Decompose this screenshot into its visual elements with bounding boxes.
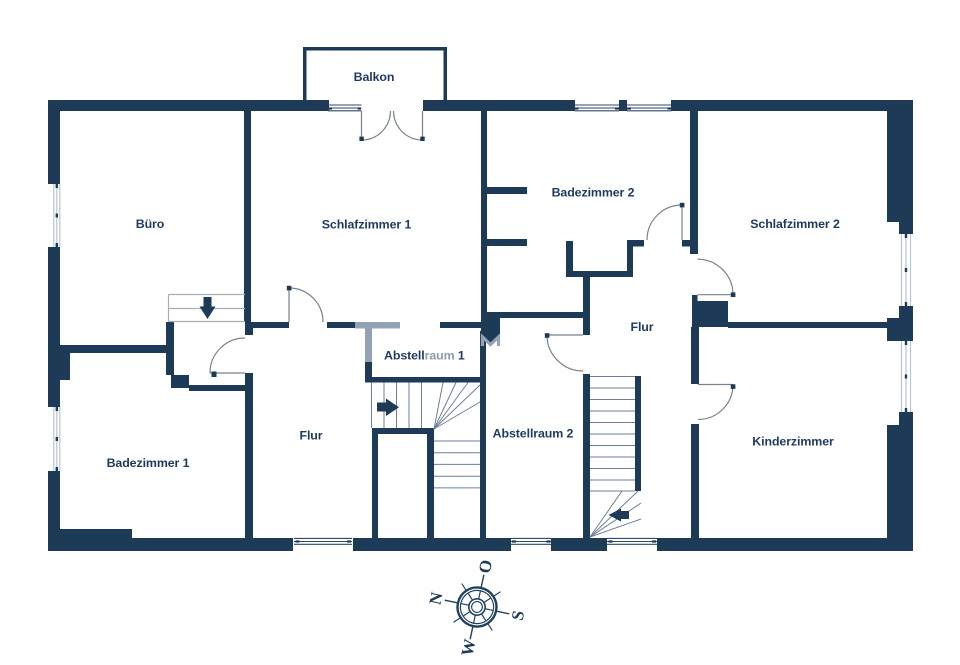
svg-text:Flur: Flur: [630, 320, 653, 334]
svg-text:Schlafzimmer 2: Schlafzimmer 2: [750, 217, 840, 231]
svg-text:Kinderzimmer: Kinderzimmer: [752, 435, 834, 449]
svg-text:Büro: Büro: [136, 217, 165, 231]
svg-text:Abstellraum 1: Abstellraum 1: [384, 349, 465, 363]
svg-text:Balkon: Balkon: [354, 70, 395, 84]
svg-text:Schlafzimmer 1: Schlafzimmer 1: [322, 218, 412, 232]
svg-text:Badezimmer 1: Badezimmer 1: [107, 456, 190, 470]
svg-text:Badezimmer 2: Badezimmer 2: [552, 186, 635, 200]
svg-text:Flur: Flur: [299, 429, 322, 443]
svg-text:Abstellraum 2: Abstellraum 2: [493, 427, 574, 441]
